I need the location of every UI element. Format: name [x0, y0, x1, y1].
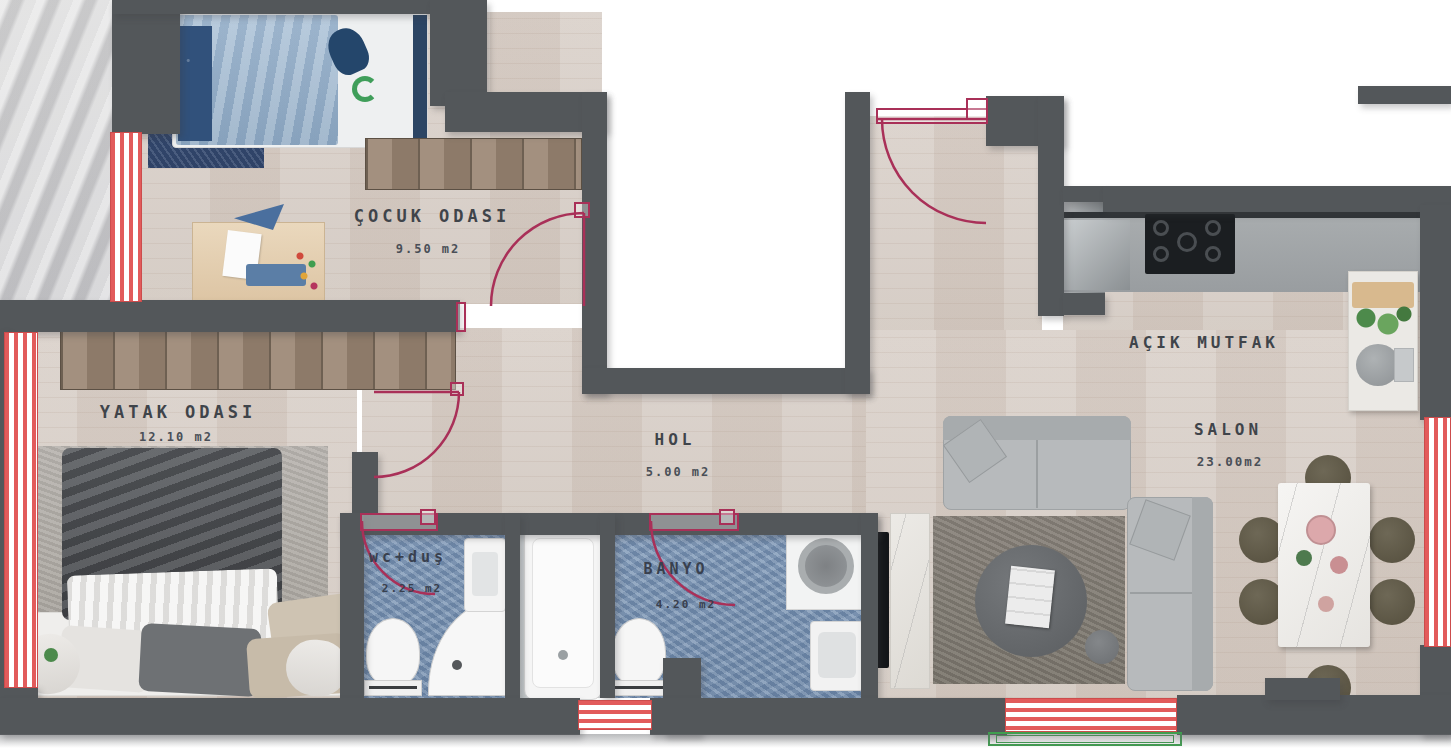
room-label-hol: HOL [655, 430, 696, 449]
area-label-salon: 23.00m2 [1197, 454, 1264, 469]
room-label-cocuk: ÇOCUK ODASI [354, 206, 511, 226]
area-label-cocuk: 9.50 m2 [396, 242, 461, 256]
room-label-salon: SALON [1194, 420, 1262, 439]
area-label-wc: 2.25 m2 [382, 582, 442, 595]
door-bedroom [374, 392, 459, 477]
area-label-hol: 5.00 m2 [646, 465, 711, 479]
area-label-yatak: 12.10 m2 [139, 430, 213, 444]
floor-plan: ÇOCUK ODASI 9.50 m2 YATAK ODASI 12.10 m2… [0, 0, 1451, 748]
wall-shadow [0, 734, 1451, 748]
room-label-mutfak: AÇIK MUTFAK [1129, 333, 1279, 352]
door-swing-arcs [0, 0, 1451, 748]
door-children-room [491, 213, 584, 306]
room-label-banyo: BANYO [643, 560, 708, 578]
room-label-wc: wc+duş [369, 548, 447, 566]
area-label-banyo: 4.20 m2 [656, 598, 716, 611]
door-entrance [878, 119, 986, 223]
room-label-yatak: YATAK ODASI [100, 402, 257, 422]
